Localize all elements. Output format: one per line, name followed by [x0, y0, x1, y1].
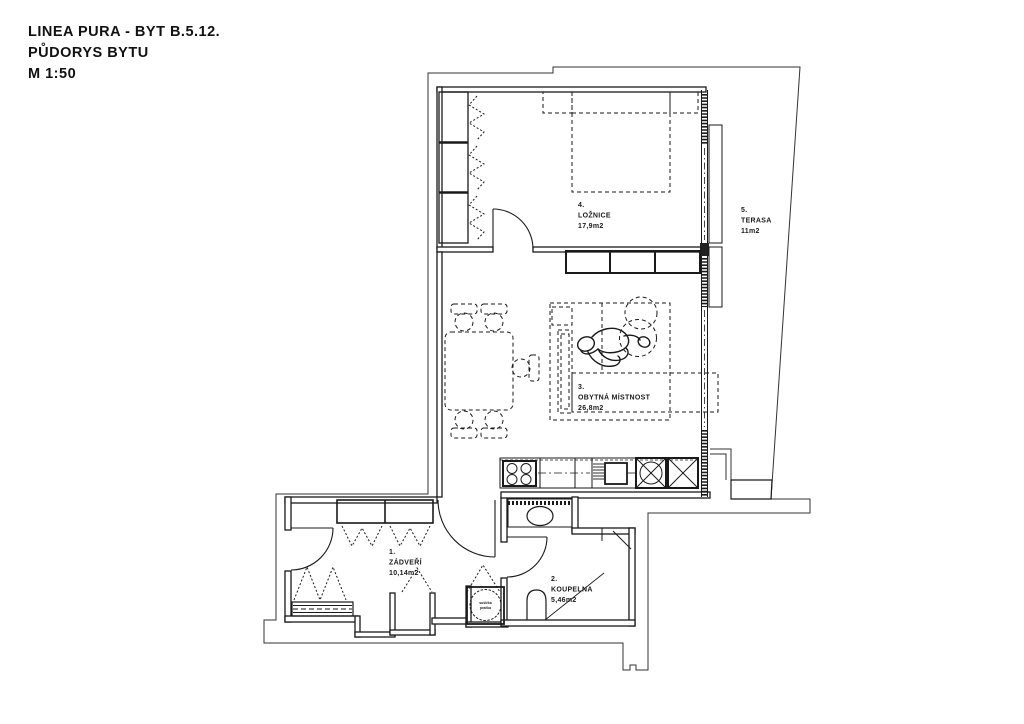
svg-text:1.: 1.: [389, 549, 395, 556]
svg-text:LOŽNICE: LOŽNICE: [578, 211, 611, 220]
washbasin: [527, 507, 553, 526]
svg-text:3.: 3.: [578, 384, 584, 391]
armchair: [625, 297, 657, 329]
terrace-door-threshold-bedroom: [709, 125, 722, 243]
svg-text:11m2: 11m2: [741, 228, 760, 235]
svg-text:17,9m2: 17,9m2: [578, 223, 604, 230]
floorplan-page: LINEA PURA - BYT B.5.12. PŮDORYS BYTU M …: [0, 0, 1024, 724]
side-table: [552, 307, 572, 325]
hanging-clothes-icon: [469, 96, 484, 140]
rug: [550, 303, 670, 420]
chair: [512, 355, 539, 381]
bed: [543, 92, 698, 192]
person-figure: [576, 328, 652, 366]
bedroom-door: [493, 209, 533, 249]
svg-text:5.: 5.: [741, 207, 747, 214]
nightstand: [543, 92, 572, 113]
chair: [451, 304, 477, 331]
oven-unit: [636, 458, 666, 488]
chair: [451, 411, 477, 438]
kitchen: [500, 458, 698, 488]
nightstand: [670, 92, 698, 113]
sofa: [558, 330, 572, 413]
dining-set: [445, 304, 539, 438]
walls: [285, 87, 710, 637]
label-terrace: 5. TERASA 11m2: [741, 207, 772, 235]
label-hall: 1. ZÁDVEŘÍ 10,14m2: [389, 549, 423, 577]
dining-table: [445, 332, 513, 410]
svg-text:4.: 4.: [578, 202, 584, 209]
svg-text:pračka: pračka: [480, 606, 491, 610]
svg-text:OBYTNÁ MÍSTNOST: OBYTNÁ MÍSTNOST: [578, 393, 651, 402]
fridge-unit: [668, 458, 698, 488]
svg-text:10,14m2: 10,14m2: [389, 570, 419, 577]
terrace-door-threshold-living: [709, 247, 722, 307]
hanging-clothes-icon: [469, 146, 484, 190]
living-room-door: [438, 500, 495, 557]
shoe-bench: [292, 602, 353, 616]
entrance-door: [291, 528, 333, 570]
chair: [481, 304, 507, 331]
hanging-clothes-icon: [390, 526, 430, 546]
svg-text:KOUPELNA: KOUPELNA: [551, 587, 593, 594]
closet-icon: [467, 565, 500, 592]
svg-text:2.: 2.: [551, 576, 557, 583]
terrace-glazing: [700, 90, 722, 497]
glazing-mullion-block: [700, 243, 709, 256]
svg-text:sušička: sušička: [479, 601, 492, 605]
doors: [291, 209, 547, 577]
svg-text:TERASA: TERASA: [741, 218, 772, 225]
label-bedroom: 4. LOŽNICE 17,9m2: [578, 202, 611, 230]
wall-shelf: [566, 251, 700, 273]
building-outline: [264, 67, 810, 670]
coat-hooks-icon: [294, 567, 346, 600]
label-living-room: 3. OBYTNÁ MÍSTNOST 26,8m2: [578, 384, 651, 412]
dish-rack: [593, 464, 604, 479]
floorplan-drawing: 4. LOŽNICE 17,9m2 5. TERASA 11m2 3. OBYT…: [0, 0, 1024, 724]
chair: [481, 411, 507, 438]
sofa-area: [550, 297, 718, 420]
svg-text:ZÁDVEŘÍ: ZÁDVEŘÍ: [389, 558, 423, 567]
hanging-clothes-icon: [342, 526, 382, 546]
bathroom-door: [507, 537, 547, 577]
label-bathroom: 2. KOUPELNA 5,46m2: [551, 576, 593, 604]
stove: [503, 461, 536, 486]
sofa: [561, 334, 569, 409]
wardrobe: [439, 92, 484, 243]
sink: [605, 463, 627, 484]
room-labels: 4. LOŽNICE 17,9m2 5. TERASA 11m2 3. OBYT…: [389, 202, 772, 610]
hanging-clothes-icon: [469, 196, 484, 240]
svg-text:5,46m2: 5,46m2: [551, 597, 577, 604]
svg-text:26,8m2: 26,8m2: [578, 405, 604, 412]
toilet: [527, 590, 546, 620]
label-washer: sušička pračka: [479, 601, 492, 610]
bedroom-furniture: [439, 92, 698, 243]
